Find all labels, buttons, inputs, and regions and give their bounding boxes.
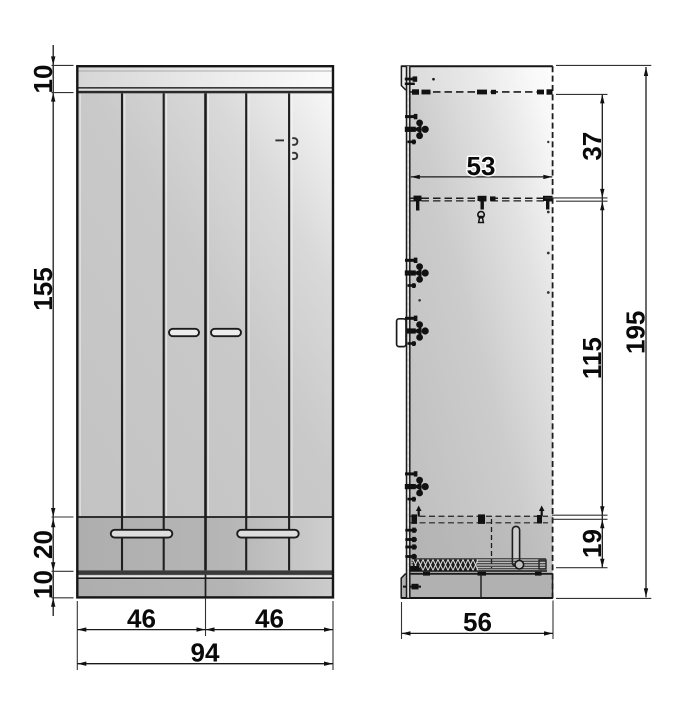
svg-text:195: 195 (620, 311, 650, 354)
svg-text:155: 155 (28, 267, 58, 310)
svg-text:10: 10 (28, 65, 58, 94)
svg-text:53: 53 (467, 151, 496, 181)
svg-text:19: 19 (577, 529, 607, 558)
svg-text:37: 37 (577, 132, 607, 161)
svg-text:94: 94 (191, 638, 220, 668)
svg-text:10: 10 (28, 570, 58, 599)
svg-text:20: 20 (28, 530, 58, 559)
svg-text:56: 56 (463, 607, 492, 637)
svg-text:46: 46 (255, 603, 284, 633)
svg-text:115: 115 (577, 337, 607, 379)
svg-text:46: 46 (127, 603, 156, 633)
